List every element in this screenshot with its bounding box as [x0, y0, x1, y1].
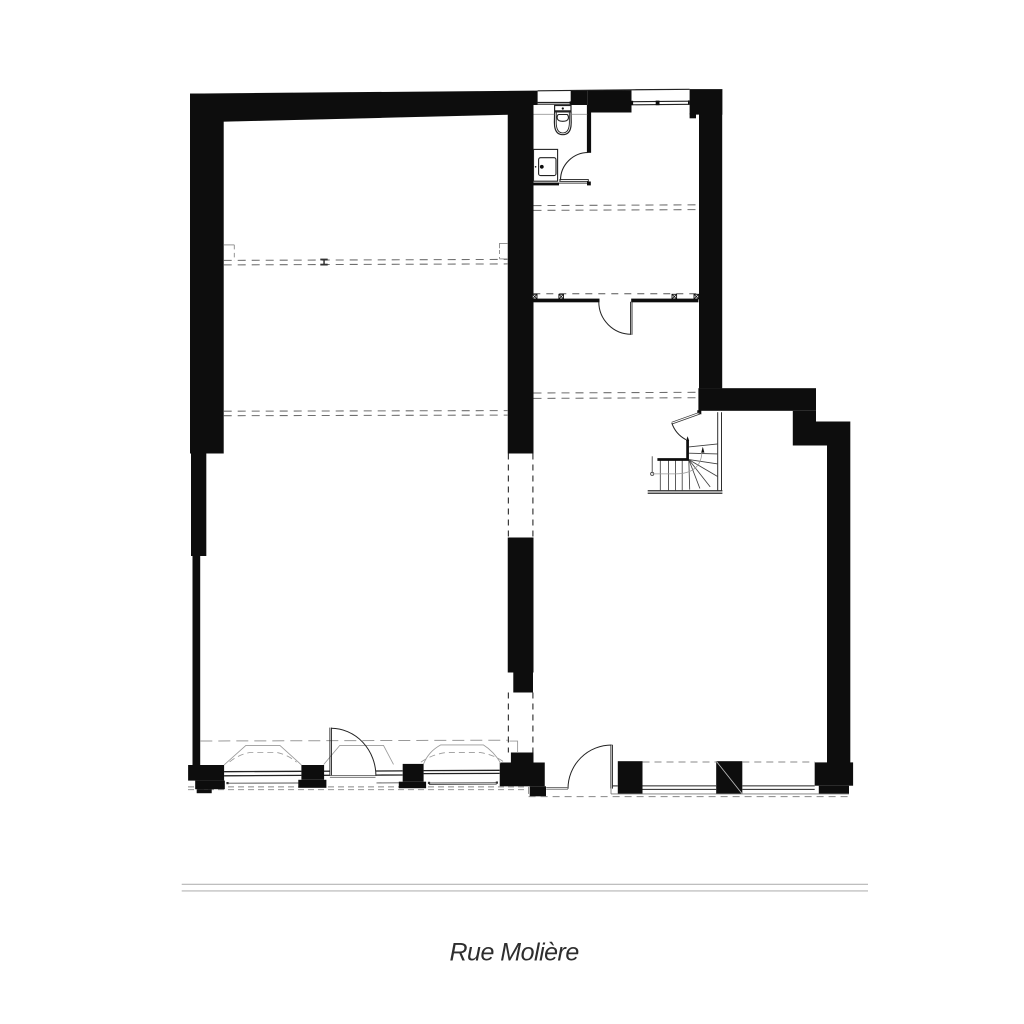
- svg-text:Rue Molière: Rue Molière: [450, 939, 579, 967]
